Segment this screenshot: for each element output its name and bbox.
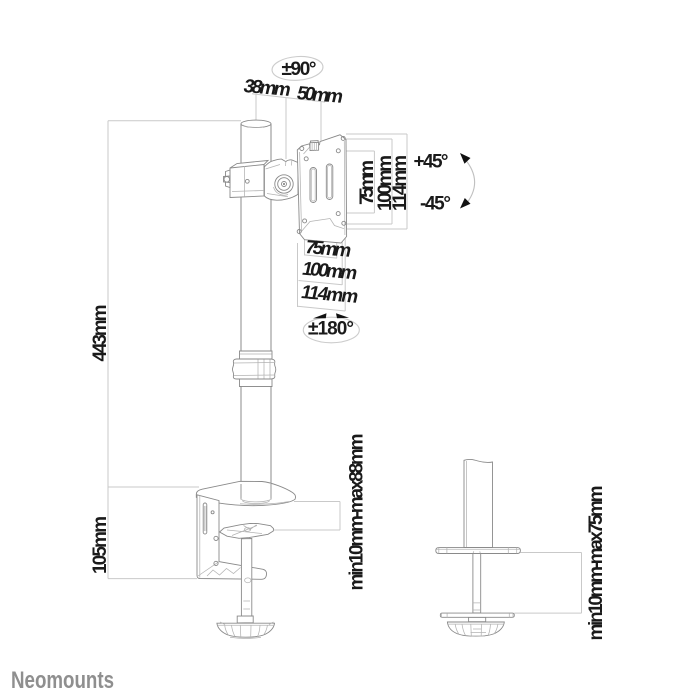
svg-text:38mm: 38mm (241, 76, 293, 101)
svg-text:114mm: 114mm (390, 155, 411, 211)
svg-text:105mm: 105mm (90, 516, 111, 574)
svg-text:50mm: 50mm (295, 83, 346, 108)
svg-text:-45°: -45° (420, 194, 451, 215)
svg-text:Neomounts: Neomounts (11, 667, 114, 694)
svg-text:443mm: 443mm (90, 305, 111, 362)
svg-text:±180°: ±180° (308, 319, 354, 340)
svg-text:min10mm-max88mm: min10mm-max88mm (347, 434, 368, 591)
svg-text:min10mm-max75mm: min10mm-max75mm (586, 486, 607, 641)
svg-text:+45°: +45° (414, 152, 449, 173)
svg-text:75mm: 75mm (303, 237, 354, 262)
svg-text:±90°: ±90° (282, 59, 317, 80)
